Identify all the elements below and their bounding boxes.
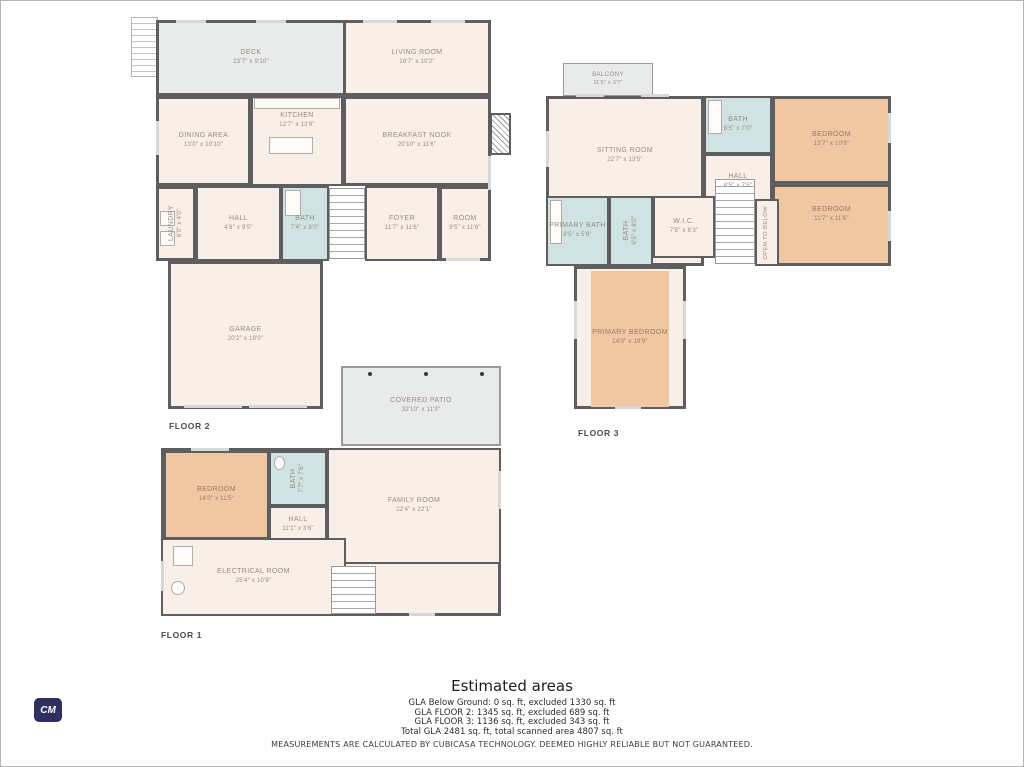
f3-room-bedroom-a: BEDROOM 13'7" x 10'9" — [772, 96, 891, 184]
f3-room-bedroom-b: BEDROOM 11'7" x 11'6" — [772, 184, 891, 266]
equipment-box — [173, 546, 193, 566]
window — [576, 94, 604, 97]
patio-post — [368, 372, 372, 376]
room-label: BATH 7'4" x 8'0" — [291, 215, 319, 232]
disclaimer-text: MEASUREMENTS ARE CALCULATED BY CUBICASA … — [1, 740, 1023, 749]
room-label: LIVING ROOM 18'7" x 10'2" — [391, 49, 442, 66]
room-label: LAUNDRY 6'0" x 4'0" — [168, 205, 184, 241]
f1-room-bedroom: BEDROOM 14'0" x 11'5" — [164, 451, 269, 539]
f2-room-living-room: LIVING ROOM 18'7" x 10'2" — [343, 20, 491, 96]
f2-room-dining-area: DINING AREA 13'0" x 10'10" — [156, 96, 251, 186]
floor3-label: FLOOR 3 — [578, 428, 619, 438]
cubicasa-logo: CM — [34, 698, 62, 722]
room-label: BATH 8'5" x 7'0" — [724, 116, 752, 133]
room-label: FAMILY ROOM 22'4" x 22'1" — [388, 497, 440, 514]
room-label: BATH 7'7" x 7'6" — [290, 464, 306, 493]
f2-room-deck: DECK 23'7" x 9'10" — [156, 20, 346, 96]
room-label: PRIMARY BEDROOM 14'0" x 19'9" — [592, 329, 668, 346]
garage-door — [184, 405, 242, 408]
window — [446, 258, 480, 261]
window — [498, 471, 501, 509]
room-label: W.I.C. 7'5" x 6'3" — [670, 218, 698, 235]
window — [156, 121, 159, 155]
f3-room-primary-bedroom: PRIMARY BEDROOM 14'0" x 19'9" — [574, 266, 686, 409]
f3-open-to-below: OPEN TO BELOW — [755, 199, 779, 266]
room-label: BEDROOM 14'0" x 11'5" — [197, 486, 236, 503]
window — [615, 406, 641, 409]
room-label: ROOM 9'5" x 11'6" — [449, 215, 481, 232]
room-label: PRIMARY BATH 8'5" x 5'6" — [549, 222, 606, 239]
window — [161, 561, 164, 591]
floor-plan-sheet: DECK 23'7" x 9'10" LIVING ROOM 18'7" x 1… — [0, 0, 1024, 767]
room-label: BREAKFAST NOOK 20'10" x 11'6" — [382, 132, 451, 149]
f1-room-family-room: FAMILY ROOM 22'4" x 22'1" — [327, 448, 501, 564]
room-label: BEDROOM 11'7" x 11'6" — [812, 206, 851, 223]
exterior-stairs — [131, 17, 158, 77]
f2-room-room: ROOM 9'5" x 11'6" — [439, 186, 491, 261]
room-label: BALCONY 11'6" x 3'7" — [592, 72, 623, 87]
gla-total: Total GLA 2481 sq. ft, total scanned are… — [1, 728, 1023, 738]
toilet — [274, 456, 285, 470]
f2-room-garage: GARAGE 20'2" x 19'0" — [168, 261, 323, 409]
f2-staircase — [329, 188, 365, 259]
window — [488, 156, 491, 190]
window — [888, 211, 891, 241]
window — [176, 20, 206, 23]
garage-door — [249, 405, 307, 408]
f1-staircase — [331, 566, 376, 614]
f3-room-bath2: BATH 6'5" x 8'0" — [609, 196, 653, 266]
fireplace — [490, 113, 511, 155]
room-label: HALL 8'5" x 7'5" — [724, 173, 752, 190]
window — [641, 94, 669, 97]
room-label: HALL 4'8" x 9'5" — [224, 215, 252, 232]
f2-room-hall: HALL 4'8" x 9'5" — [196, 186, 281, 261]
kitchen-counter — [254, 98, 340, 109]
f3-room-balcony: BALCONY 11'6" x 3'7" — [563, 63, 653, 96]
bathtub — [285, 190, 301, 216]
room-label: DECK 23'7" x 9'10" — [233, 49, 269, 66]
f3-staircase — [715, 179, 755, 264]
room-label: BATH 6'5" x 8'0" — [623, 216, 639, 245]
f1-room-covered-patio: COVERED PATIO 32'10" x 11'3" — [341, 366, 501, 446]
f3-room-wic: W.I.C. 7'5" x 6'3" — [653, 196, 715, 258]
window — [574, 301, 577, 339]
room-label: GARAGE 20'2" x 19'0" — [228, 326, 264, 343]
room-label: FOYER 11'7" x 11'6" — [385, 215, 420, 232]
bathtub — [708, 100, 722, 134]
window — [363, 20, 397, 23]
window — [546, 131, 549, 167]
floor2-label: FLOOR 2 — [169, 421, 210, 431]
room-label: COVERED PATIO 32'10" x 11'3" — [390, 397, 452, 414]
f2-room-breakfast-nook: BREAKFAST NOOK 20'10" x 11'6" — [343, 96, 491, 186]
window — [256, 20, 286, 23]
patio-post — [424, 372, 428, 376]
room-label: ELECTRICAL ROOM 25'4" x 10'6" — [217, 568, 290, 585]
room-label: DINING AREA 13'0" x 10'10" — [179, 132, 229, 149]
window — [888, 113, 891, 143]
electrical-symbol — [171, 581, 185, 595]
window — [431, 20, 465, 23]
room-label: KITCHEN 12'7" x 13'9" — [279, 112, 315, 129]
window — [409, 613, 435, 616]
room-label: OPEN TO BELOW — [763, 206, 770, 260]
window — [191, 448, 229, 451]
cubicasa-logo-text: CM — [40, 705, 56, 716]
floor1-label: FLOOR 1 — [161, 630, 202, 640]
estimated-areas-title: Estimated areas — [1, 677, 1023, 695]
estimated-areas-block: Estimated areas GLA Below Ground: 0 sq. … — [1, 677, 1023, 737]
room-label: BEDROOM 13'7" x 10'9" — [812, 131, 851, 148]
room-label: SITTING ROOM 22'7" x 13'5" — [597, 147, 653, 164]
kitchen-island — [269, 137, 313, 154]
room-label: HALL 11'1" x 3'6" — [282, 516, 314, 533]
window — [683, 301, 686, 339]
patio-post — [480, 372, 484, 376]
f2-room-foyer: FOYER 11'7" x 11'6" — [365, 186, 439, 261]
